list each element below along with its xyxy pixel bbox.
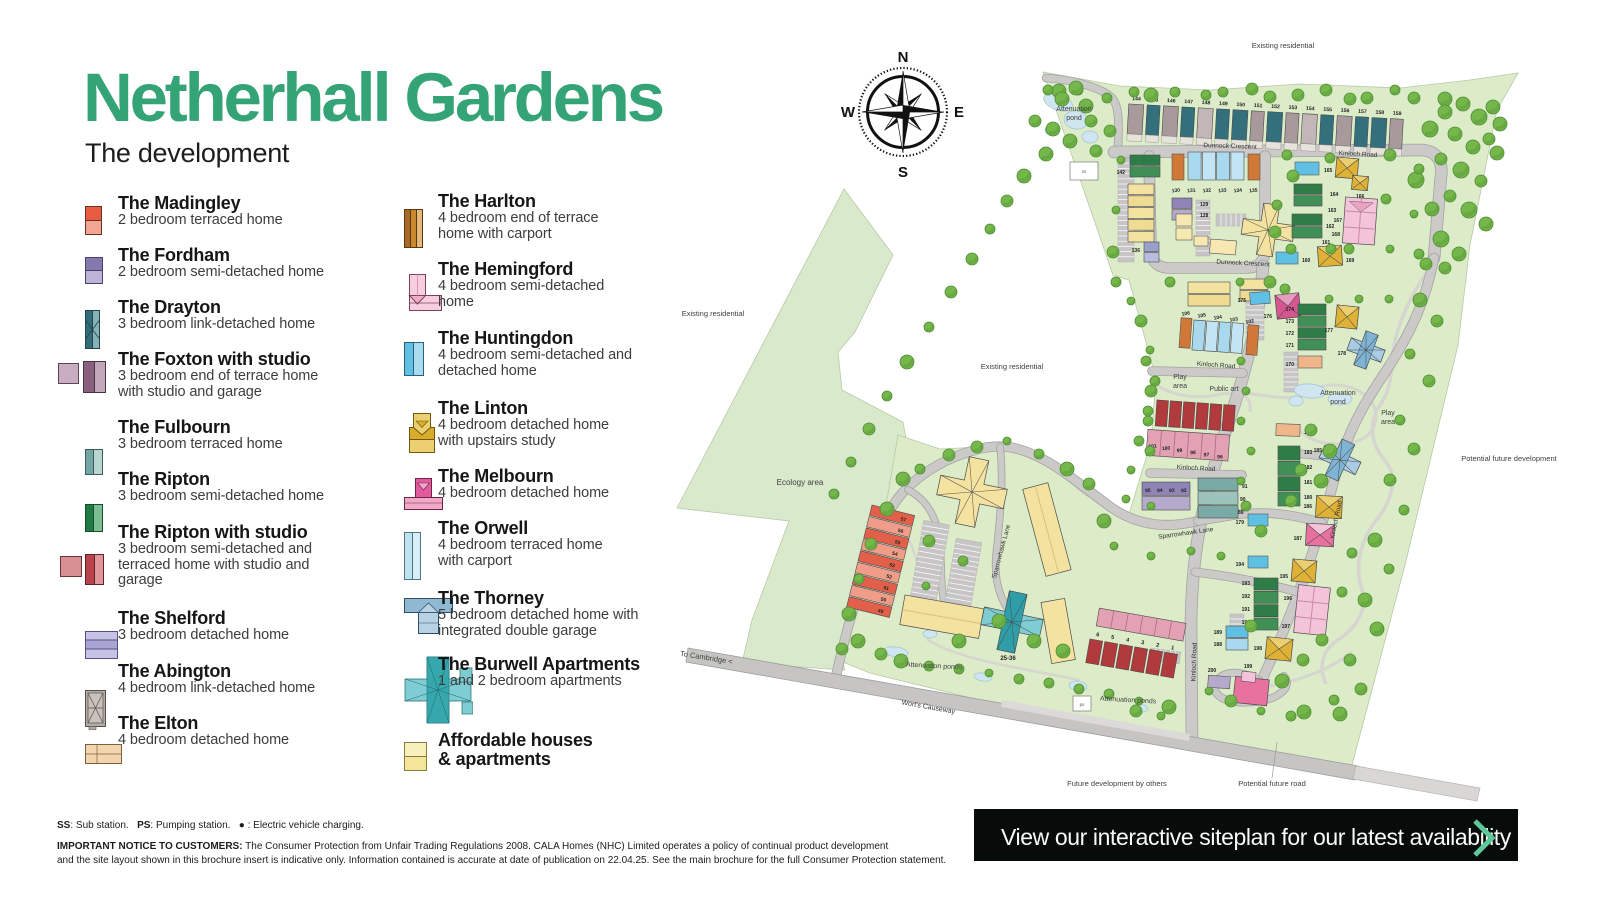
- svg-text:189: 189: [1214, 630, 1223, 636]
- svg-text:180: 180: [1304, 495, 1313, 501]
- svg-text:179: 179: [1236, 520, 1245, 526]
- svg-text:156: 156: [1341, 108, 1350, 114]
- svg-text:134: 134: [1233, 188, 1242, 195]
- svg-text:89: 89: [1238, 510, 1244, 516]
- svg-text:Attenuation: Attenuation: [1320, 390, 1356, 397]
- svg-text:170: 170: [1286, 362, 1295, 368]
- svg-text:162: 162: [1326, 224, 1335, 230]
- svg-text:151: 151: [1254, 103, 1263, 109]
- svg-text:92: 92: [1181, 488, 1187, 495]
- svg-text:186: 186: [1304, 504, 1313, 510]
- svg-text:152: 152: [1271, 104, 1280, 110]
- svg-text:168: 168: [1332, 232, 1341, 238]
- svg-text:148: 148: [1202, 100, 1211, 106]
- svg-text:196: 196: [1284, 596, 1293, 602]
- svg-text:N: N: [898, 49, 909, 66]
- svg-text:147: 147: [1184, 99, 1193, 105]
- svg-text:ss: ss: [1082, 169, 1087, 174]
- svg-text:Potential future road: Potential future road: [1238, 779, 1306, 788]
- svg-text:area: area: [1381, 419, 1395, 426]
- svg-text:154: 154: [1306, 106, 1315, 112]
- svg-text:172: 172: [1286, 331, 1295, 337]
- svg-text:195: 195: [1280, 574, 1289, 580]
- svg-text:171: 171: [1286, 343, 1295, 349]
- svg-text:100: 100: [1162, 446, 1171, 453]
- svg-text:198: 198: [1254, 646, 1263, 652]
- svg-text:102: 102: [1245, 318, 1254, 325]
- svg-text:Kinloch Road: Kinloch Road: [1190, 642, 1198, 681]
- svg-text:Ecology area: Ecology area: [777, 478, 824, 487]
- svg-text:Potential future development: Potential future development: [1461, 454, 1557, 463]
- svg-text:S: S: [898, 164, 908, 181]
- svg-text:150: 150: [1236, 102, 1245, 108]
- svg-text:163: 163: [1328, 208, 1337, 214]
- svg-text:200: 200: [1208, 668, 1217, 674]
- svg-text:175: 175: [1238, 298, 1247, 304]
- svg-text:165: 165: [1324, 168, 1333, 174]
- svg-text:158: 158: [1375, 110, 1384, 116]
- svg-text:131: 131: [1187, 188, 1196, 195]
- svg-text:130: 130: [1171, 188, 1180, 195]
- svg-text:95: 95: [1145, 488, 1151, 495]
- svg-text:Public art: Public art: [1209, 386, 1238, 393]
- svg-text:Existing residential: Existing residential: [1252, 41, 1315, 50]
- svg-text:181: 181: [1304, 480, 1313, 486]
- svg-text:Existing residential: Existing residential: [981, 362, 1044, 371]
- svg-text:187: 187: [1294, 536, 1303, 542]
- svg-text:93: 93: [1169, 488, 1175, 495]
- svg-text:174: 174: [1286, 307, 1295, 313]
- svg-text:E: E: [954, 104, 964, 121]
- svg-text:99: 99: [1177, 448, 1183, 454]
- svg-text:135: 135: [1249, 188, 1258, 195]
- svg-text:106: 106: [1181, 310, 1190, 317]
- svg-text:173: 173: [1286, 319, 1295, 325]
- svg-text:pond: pond: [1066, 115, 1082, 122]
- svg-text:178: 178: [1338, 351, 1347, 357]
- svg-text:96: 96: [1217, 454, 1223, 460]
- svg-text:199: 199: [1244, 664, 1253, 670]
- svg-text:94: 94: [1157, 488, 1163, 495]
- svg-text:ps: ps: [1080, 702, 1086, 707]
- svg-text:W: W: [841, 104, 856, 121]
- svg-text:Play: Play: [1173, 374, 1187, 381]
- svg-text:area: area: [1173, 383, 1187, 390]
- svg-text:133: 133: [1218, 188, 1227, 195]
- svg-text:194: 194: [1236, 562, 1245, 568]
- svg-text:167: 167: [1334, 218, 1343, 224]
- svg-text:192: 192: [1242, 594, 1251, 600]
- svg-text:191: 191: [1242, 607, 1251, 613]
- svg-text:157: 157: [1358, 109, 1367, 115]
- svg-text:Attenuation: Attenuation: [1056, 106, 1092, 113]
- svg-text:132: 132: [1202, 188, 1211, 195]
- svg-text:183: 183: [1304, 450, 1313, 456]
- svg-text:128: 128: [1200, 213, 1209, 219]
- svg-text:105: 105: [1197, 312, 1206, 319]
- svg-text:149: 149: [1219, 101, 1228, 107]
- svg-text:188: 188: [1214, 642, 1223, 648]
- svg-text:159: 159: [1393, 111, 1402, 117]
- svg-text:103: 103: [1229, 316, 1238, 323]
- svg-text:Future development by others: Future development by others: [1067, 779, 1167, 788]
- svg-text:Play: Play: [1381, 410, 1395, 417]
- svg-text:176: 176: [1264, 314, 1273, 320]
- svg-text:129: 129: [1200, 202, 1209, 208]
- svg-text:142: 142: [1117, 170, 1126, 176]
- svg-text:185: 185: [1314, 448, 1323, 454]
- svg-text:Existing residential: Existing residential: [682, 309, 745, 318]
- svg-text:25-36: 25-36: [1000, 656, 1016, 662]
- svg-text:177: 177: [1325, 328, 1334, 334]
- svg-text:pond: pond: [1330, 399, 1346, 406]
- svg-text:136: 136: [1132, 248, 1141, 254]
- svg-text:169: 169: [1346, 258, 1355, 264]
- svg-text:153: 153: [1288, 105, 1297, 111]
- svg-text:160: 160: [1302, 258, 1311, 264]
- svg-text:97: 97: [1204, 452, 1210, 458]
- svg-text:104: 104: [1213, 314, 1222, 321]
- svg-text:98: 98: [1190, 450, 1196, 456]
- svg-text:197: 197: [1282, 624, 1291, 630]
- svg-text:146: 146: [1167, 98, 1176, 104]
- svg-text:155: 155: [1323, 107, 1332, 113]
- svg-text:164: 164: [1330, 192, 1339, 198]
- svg-text:193: 193: [1242, 581, 1251, 587]
